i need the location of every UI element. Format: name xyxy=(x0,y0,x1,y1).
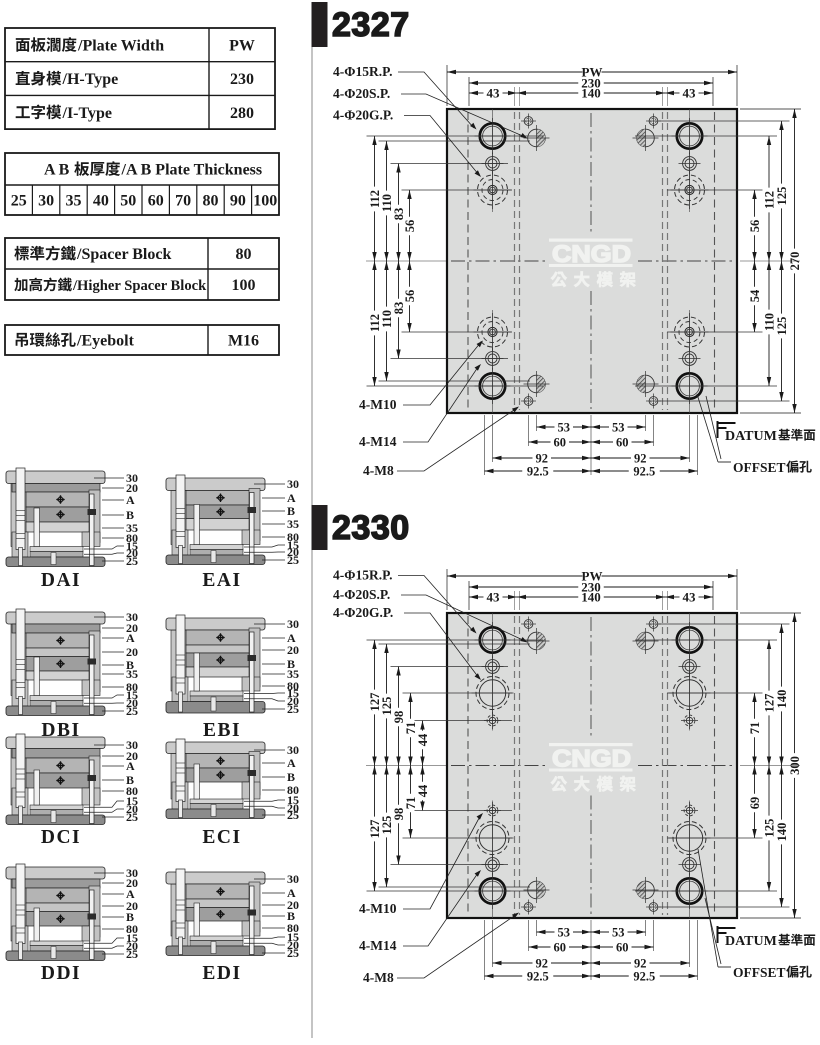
svg-text:30: 30 xyxy=(287,872,299,886)
svg-text:98: 98 xyxy=(392,711,406,724)
svg-text:71: 71 xyxy=(748,722,762,735)
svg-text:/Plate Width: /Plate Width xyxy=(77,37,164,54)
svg-text:35: 35 xyxy=(66,193,82,210)
svg-text:EAI: EAI xyxy=(202,570,241,591)
svg-text:A: A xyxy=(126,493,135,507)
svg-text:25: 25 xyxy=(287,553,299,567)
svg-text:53: 53 xyxy=(612,925,625,939)
svg-text:43: 43 xyxy=(487,85,501,100)
svg-text:69: 69 xyxy=(748,797,762,810)
svg-text:ECI: ECI xyxy=(202,827,241,848)
svg-text:80: 80 xyxy=(203,193,219,210)
svg-text:92.5: 92.5 xyxy=(527,464,549,478)
svg-text:30: 30 xyxy=(287,743,299,757)
svg-text:140: 140 xyxy=(775,823,789,842)
svg-text:92: 92 xyxy=(634,451,647,465)
svg-text:20: 20 xyxy=(287,643,299,657)
svg-text:4-Φ15R.P.: 4-Φ15R.P. xyxy=(333,64,392,79)
svg-text:53: 53 xyxy=(558,925,571,939)
svg-text:4-M8: 4-M8 xyxy=(363,463,394,478)
svg-text:4-M14: 4-M14 xyxy=(359,938,397,953)
svg-text:B: B xyxy=(126,508,134,522)
svg-text:M16: M16 xyxy=(228,333,259,350)
svg-text:100: 100 xyxy=(232,277,256,294)
svg-text:4-Φ15R.P.: 4-Φ15R.P. xyxy=(333,568,392,583)
svg-text:300: 300 xyxy=(788,756,802,775)
svg-text:43: 43 xyxy=(683,85,697,100)
svg-text:92.5: 92.5 xyxy=(527,969,549,983)
svg-text:4-M8: 4-M8 xyxy=(363,970,394,985)
svg-text:71: 71 xyxy=(404,722,418,735)
svg-text:4-M14: 4-M14 xyxy=(359,434,397,449)
svg-text:60: 60 xyxy=(554,435,567,449)
svg-text:50: 50 xyxy=(120,193,136,210)
svg-text:56: 56 xyxy=(748,220,762,233)
svg-text:4-Φ20G.P.: 4-Φ20G.P. xyxy=(333,605,393,620)
svg-text:60: 60 xyxy=(616,940,629,954)
svg-text:92: 92 xyxy=(634,956,647,970)
svg-text:2327: 2327 xyxy=(332,6,410,44)
svg-text:25: 25 xyxy=(11,193,27,210)
svg-text:4-Φ20G.P.: 4-Φ20G.P. xyxy=(333,108,393,123)
svg-text:25: 25 xyxy=(126,810,138,824)
svg-text:25: 25 xyxy=(126,947,138,961)
svg-text:140: 140 xyxy=(775,690,789,709)
svg-text:44: 44 xyxy=(416,733,430,746)
svg-text:43: 43 xyxy=(487,589,501,604)
svg-text:60: 60 xyxy=(148,193,164,210)
svg-text:83: 83 xyxy=(392,302,406,315)
svg-text:80: 80 xyxy=(236,246,252,263)
svg-text:4-Φ20S.P.: 4-Φ20S.P. xyxy=(333,86,390,101)
svg-text:35: 35 xyxy=(126,667,138,681)
svg-text:92: 92 xyxy=(536,451,549,465)
svg-text:140: 140 xyxy=(581,589,601,604)
svg-text:54: 54 xyxy=(748,289,762,302)
svg-text:B: B xyxy=(287,770,295,784)
svg-text:A: A xyxy=(126,631,135,645)
svg-text:/A B Plate Thickness: /A B Plate Thickness xyxy=(121,162,263,179)
svg-text:44: 44 xyxy=(416,784,430,797)
svg-text:53: 53 xyxy=(558,420,571,434)
svg-text:A: A xyxy=(287,756,296,770)
svg-text:4-M10: 4-M10 xyxy=(359,397,397,412)
svg-text:/I-Type: /I-Type xyxy=(62,105,112,122)
svg-text:280: 280 xyxy=(230,105,254,122)
svg-text:4-M10: 4-M10 xyxy=(359,901,397,916)
svg-text:92.5: 92.5 xyxy=(633,969,655,983)
svg-text:A: A xyxy=(287,491,296,505)
svg-text:90: 90 xyxy=(230,193,246,210)
svg-text:DATUM: DATUM xyxy=(725,934,777,949)
svg-text:92.5: 92.5 xyxy=(633,464,655,478)
svg-text:EDI: EDI xyxy=(202,963,241,984)
svg-text:OFFSET: OFFSET xyxy=(733,460,786,475)
svg-text:92: 92 xyxy=(536,956,549,970)
svg-text:270: 270 xyxy=(788,252,802,271)
svg-text:70: 70 xyxy=(175,193,191,210)
svg-text:25: 25 xyxy=(287,702,299,716)
svg-text:83: 83 xyxy=(392,208,406,221)
svg-text:/Higher Spacer Block: /Higher Spacer Block xyxy=(72,278,207,294)
svg-text:/Eyebolt: /Eyebolt xyxy=(76,333,135,350)
svg-text:CNGD: CNGD xyxy=(552,241,631,268)
svg-text:53: 53 xyxy=(612,420,625,434)
svg-text:EBI: EBI xyxy=(203,720,241,741)
svg-text:DCI: DCI xyxy=(41,827,81,848)
svg-text:30: 30 xyxy=(287,617,299,631)
svg-text:30: 30 xyxy=(287,477,299,491)
svg-text:DAI: DAI xyxy=(41,570,81,591)
svg-text:60: 60 xyxy=(554,940,567,954)
svg-text:25: 25 xyxy=(126,554,138,568)
svg-text:230: 230 xyxy=(230,71,254,88)
svg-text:20: 20 xyxy=(126,645,138,659)
svg-text:B: B xyxy=(287,504,295,518)
svg-text:43: 43 xyxy=(683,589,697,604)
svg-text:PW: PW xyxy=(229,37,255,54)
svg-text:60: 60 xyxy=(616,435,629,449)
svg-text:25: 25 xyxy=(287,808,299,822)
svg-text:56: 56 xyxy=(403,220,417,233)
svg-text:71: 71 xyxy=(404,797,418,810)
svg-text:40: 40 xyxy=(93,193,109,210)
svg-text:2330: 2330 xyxy=(332,509,410,547)
svg-text:/H-Type: /H-Type xyxy=(62,71,119,88)
svg-text:140: 140 xyxy=(581,85,601,100)
svg-text:/Spacer Block: /Spacer Block xyxy=(76,246,171,263)
svg-text:OFFSET: OFFSET xyxy=(733,965,786,980)
svg-text:30: 30 xyxy=(38,193,54,210)
svg-text:CNGD: CNGD xyxy=(552,746,631,773)
svg-text:4-Φ20S.P.: 4-Φ20S.P. xyxy=(333,587,390,602)
svg-text:A B: A B xyxy=(44,162,70,179)
svg-text:25: 25 xyxy=(287,946,299,960)
svg-text:DATUM: DATUM xyxy=(725,429,777,444)
svg-text:A: A xyxy=(126,759,135,773)
svg-text:DDI: DDI xyxy=(41,963,81,984)
svg-text:125: 125 xyxy=(775,317,789,336)
svg-text:25: 25 xyxy=(126,704,138,718)
svg-text:125: 125 xyxy=(775,187,789,206)
svg-text:100: 100 xyxy=(253,193,277,210)
svg-text:35: 35 xyxy=(287,517,299,531)
svg-text:56: 56 xyxy=(403,290,417,303)
